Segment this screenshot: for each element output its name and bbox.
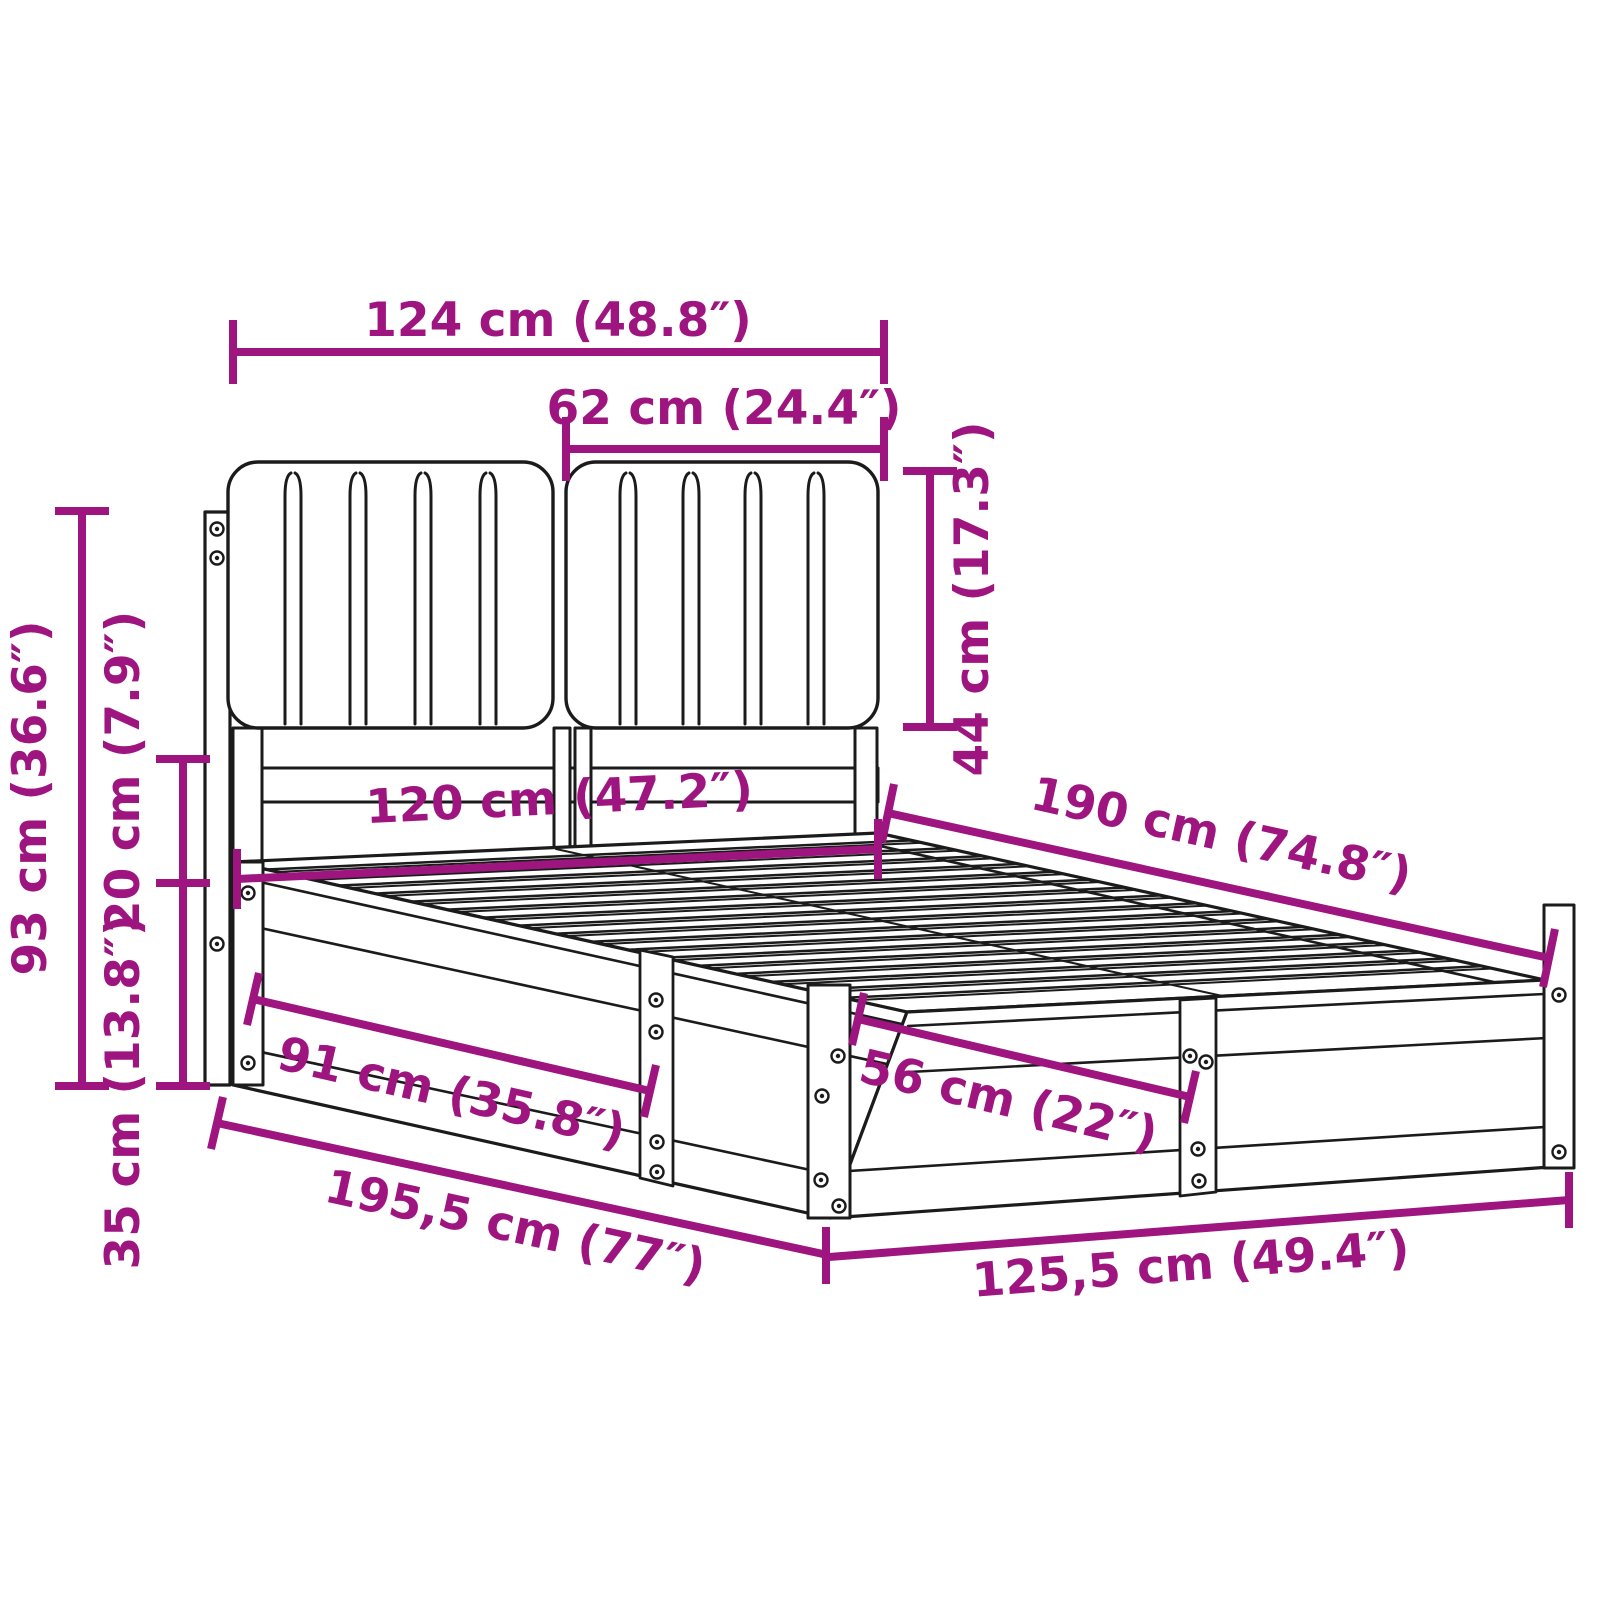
dim-gap-and-base-height: 20 cm (7.9″) 35 cm (13.8″): [96, 611, 210, 1270]
dim-headboard-total-width: 124 cm (48.8″): [233, 293, 884, 384]
dim-label-headboard-total-height: 93 cm (36.6″): [3, 621, 58, 976]
headboard-cushion-left: [228, 462, 553, 728]
dim-label-base-frame-height: 35 cm (13.8″): [96, 915, 151, 1270]
dim-label-headboard-cushion-width: 62 cm (24.4″): [547, 381, 902, 436]
bed-dimension-diagram: 124 cm (48.8″) 62 cm (24.4″) 44 cm (17.3…: [0, 0, 1600, 1600]
dim-label-frame-outer-width: 125,5 cm (49.4″): [970, 1220, 1411, 1308]
dim-label-cushion-to-base-gap: 20 cm (7.9″): [96, 611, 151, 933]
dim-label-headboard-cushion-height: 44 cm (17.3″): [945, 422, 1000, 777]
headboard-cushion-right: [566, 462, 878, 728]
dim-headboard-total-height: 93 cm (36.6″): [3, 511, 109, 1086]
dim-headboard-cushion-height: 44 cm (17.3″): [903, 422, 1000, 777]
dim-label-headboard-total-width: 124 cm (48.8″): [364, 293, 752, 348]
headboard-post: [205, 512, 230, 1085]
